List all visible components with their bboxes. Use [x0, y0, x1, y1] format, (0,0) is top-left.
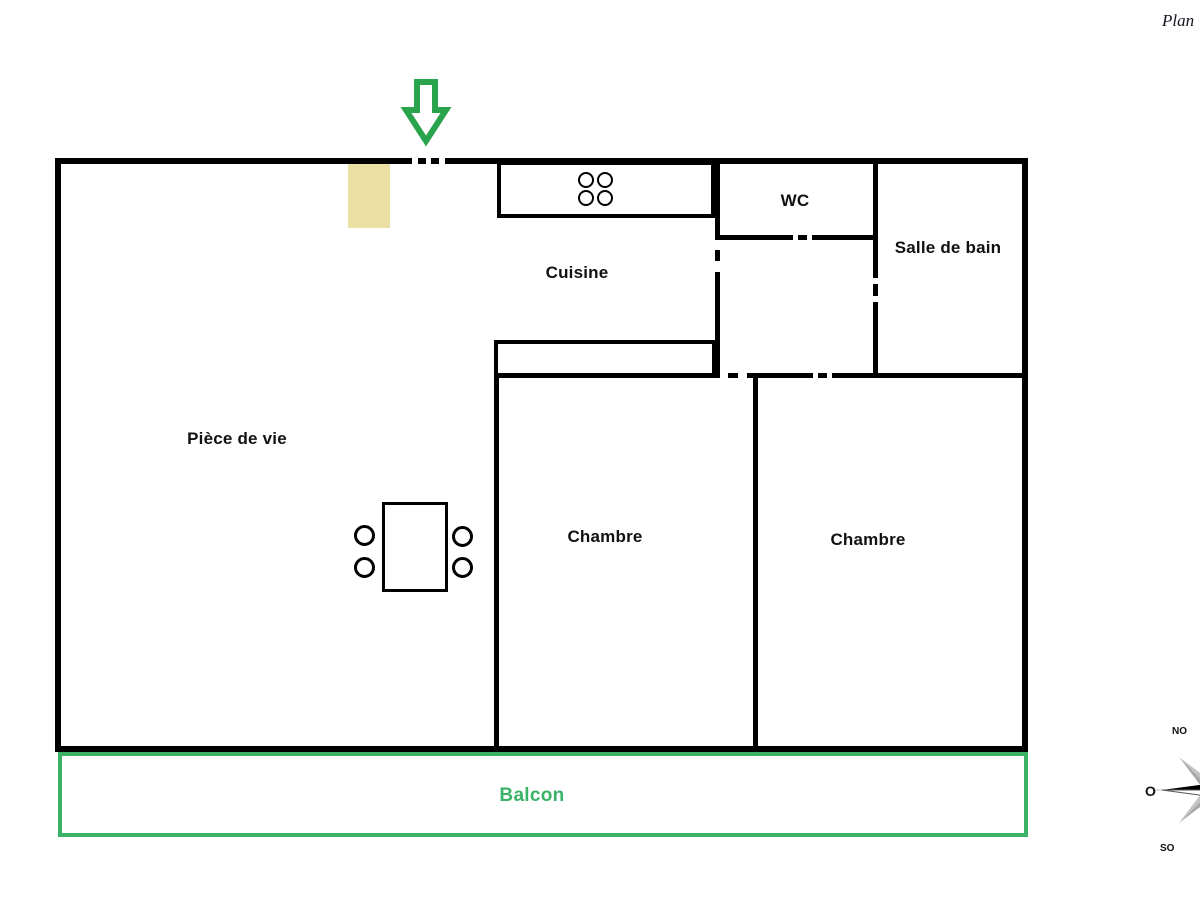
entrance-opening-dash-1	[418, 158, 426, 164]
wall-bathroom-left-upper	[873, 164, 878, 278]
entrance-arrow-icon	[400, 76, 452, 148]
entrance-opening-dash-2	[431, 158, 439, 164]
dining-table	[382, 502, 448, 592]
wall-left	[55, 158, 61, 752]
room-label-bathroom: Salle de bain	[895, 238, 1002, 258]
bathroom-door-dash	[873, 284, 878, 296]
wall-bathroom-left-lower	[873, 302, 878, 378]
compass-label-nw: NO	[1172, 726, 1187, 737]
room-label-wc: WC	[781, 191, 810, 211]
wall-bedroom-divider	[753, 378, 758, 752]
chair-icon	[354, 525, 375, 546]
chair-icon	[452, 526, 473, 547]
wall-bedroom1-left	[494, 378, 499, 752]
plan-annotation: Plan	[1162, 11, 1194, 31]
wall-kitchen-hall-upper	[715, 164, 720, 238]
compass-label-sw: SO	[1160, 843, 1175, 854]
wall-wc-bottom-right	[812, 235, 878, 240]
stove-burner-icon	[597, 190, 613, 206]
wall-right	[1022, 158, 1028, 752]
stove-burner-icon	[578, 190, 594, 206]
chair-icon	[354, 557, 375, 578]
compass-rose-icon: NO O SO	[1140, 698, 1200, 883]
room-label-living: Pièce de vie	[187, 429, 287, 449]
floor-plan: Balcon Pièce de vie Cuisine WC Salle de …	[0, 0, 1200, 900]
stove-burner-icon	[597, 172, 613, 188]
wall-mid-right-segment	[832, 373, 1028, 378]
room-label-kitchen: Cuisine	[546, 263, 609, 283]
kitchen-door-dash	[715, 250, 720, 261]
kitchen-counter-bottom	[494, 340, 716, 377]
compass-label-w: O	[1145, 783, 1156, 799]
room-label-bedroom2: Chambre	[830, 530, 905, 550]
stove-burner-icon	[578, 172, 594, 188]
chair-icon	[452, 557, 473, 578]
entrance-furniture-block	[348, 164, 390, 228]
wc-door-dash	[798, 235, 807, 240]
bedroom2-door-dash	[818, 373, 827, 378]
room-label-bedroom1: Chambre	[567, 527, 642, 547]
room-label-balcony: Balcon	[499, 785, 564, 807]
bedroom1-door-dash	[728, 373, 738, 378]
wall-wc-bottom-left	[715, 235, 793, 240]
